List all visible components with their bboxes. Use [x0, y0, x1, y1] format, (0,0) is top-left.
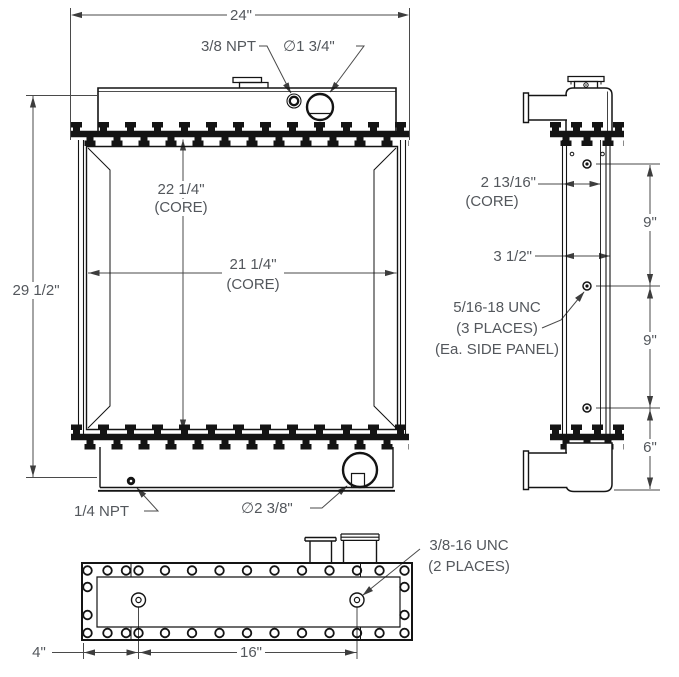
dim-overall-depth: 3 1/2" — [460, 248, 532, 265]
dim-core-height: 22 1/4" — [154, 181, 207, 198]
label-outlet-diameter: ∅2 3/8" — [241, 500, 293, 517]
label-mount-holes-spec: 3/8-16 UNC — [429, 537, 508, 554]
dim-core-height-note: (CORE) — [151, 199, 210, 216]
label-mount-holes-count: (2 PLACES) — [428, 558, 510, 575]
dim-hole-edge-offset: 4" — [32, 644, 46, 661]
filler-cap — [568, 77, 604, 82]
filler-neck — [233, 78, 262, 83]
dim-bottom-tank-height: 6" — [640, 439, 660, 456]
dim-mount-hole-spacing: 16" — [237, 644, 265, 661]
dim-hole-spacing-upper: 9" — [640, 214, 660, 231]
threaded-mount-holes — [132, 593, 365, 607]
inlet-circle — [307, 94, 333, 120]
drawing-sheet: 24" 3/8 NPT ∅1 3/4" 29 1/2" 22 1/4" (COR… — [0, 0, 679, 677]
bottom-view-stubs — [305, 534, 379, 563]
label-inlet-diameter: ∅1 3/4" — [283, 38, 335, 55]
label-top-port: 3/8 NPT — [180, 38, 256, 55]
dim-overall-width: 24" — [227, 7, 255, 24]
dim-overall-height: 29 1/2" — [9, 282, 62, 299]
side-top-bolt-row — [550, 125, 624, 144]
dim-core-depth: 2 13/16" — [450, 174, 536, 191]
dim-core-width: 21 1/4" — [229, 256, 276, 273]
label-drain-port: 1/4 NPT — [74, 503, 129, 520]
dim-hole-spacing-lower: 9" — [640, 332, 660, 349]
dim-core-width-note: (CORE) — [226, 276, 279, 293]
label-panel-holes-location: (Ea. SIDE PANEL) — [435, 341, 559, 358]
bottom-view-linework — [82, 534, 412, 640]
drawing-canvas — [0, 0, 679, 677]
dim-core-depth-note: (CORE) — [465, 193, 518, 210]
label-panel-holes-spec: 5/16-18 UNC — [453, 299, 541, 316]
outlet-circle — [343, 453, 377, 487]
top-bolt-row — [71, 125, 409, 144]
side-view-linework — [524, 77, 625, 492]
label-panel-holes-count: (3 PLACES) — [456, 320, 538, 337]
side-panel-holes — [583, 160, 591, 412]
